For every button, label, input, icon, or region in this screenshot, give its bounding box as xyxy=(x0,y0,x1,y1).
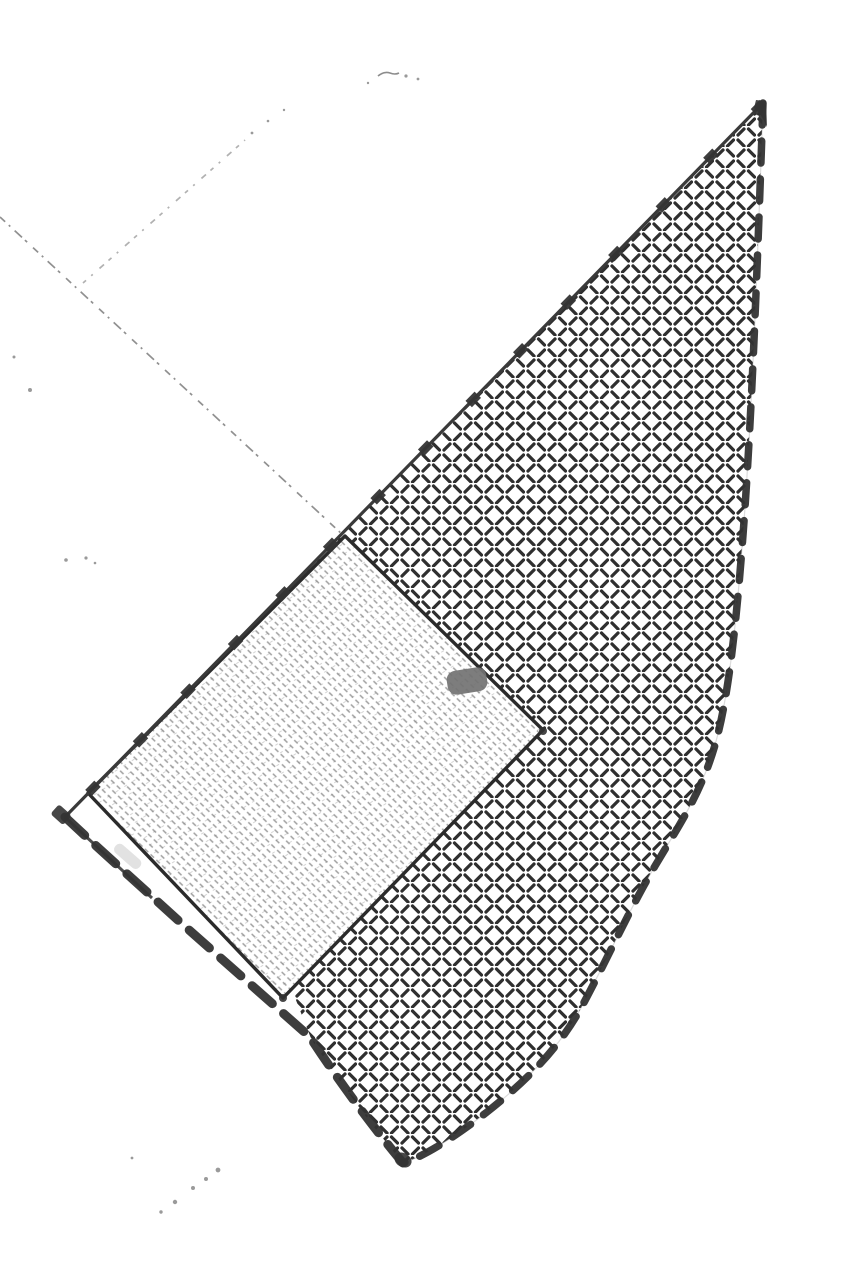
plan-sketch-svg xyxy=(0,0,849,1280)
pencil-construction-line-long xyxy=(0,217,343,535)
scanned-plan-page xyxy=(0,0,849,1280)
ink-specks-upper xyxy=(13,74,420,564)
parcel-corner-blotch-bottom xyxy=(279,994,287,1002)
pencil-construction-line-short xyxy=(83,140,245,283)
ink-specks-bottom-trail xyxy=(131,1157,221,1214)
pencil-squiggle-mark xyxy=(378,72,399,76)
parcel-corner-blotch-right xyxy=(539,727,547,735)
